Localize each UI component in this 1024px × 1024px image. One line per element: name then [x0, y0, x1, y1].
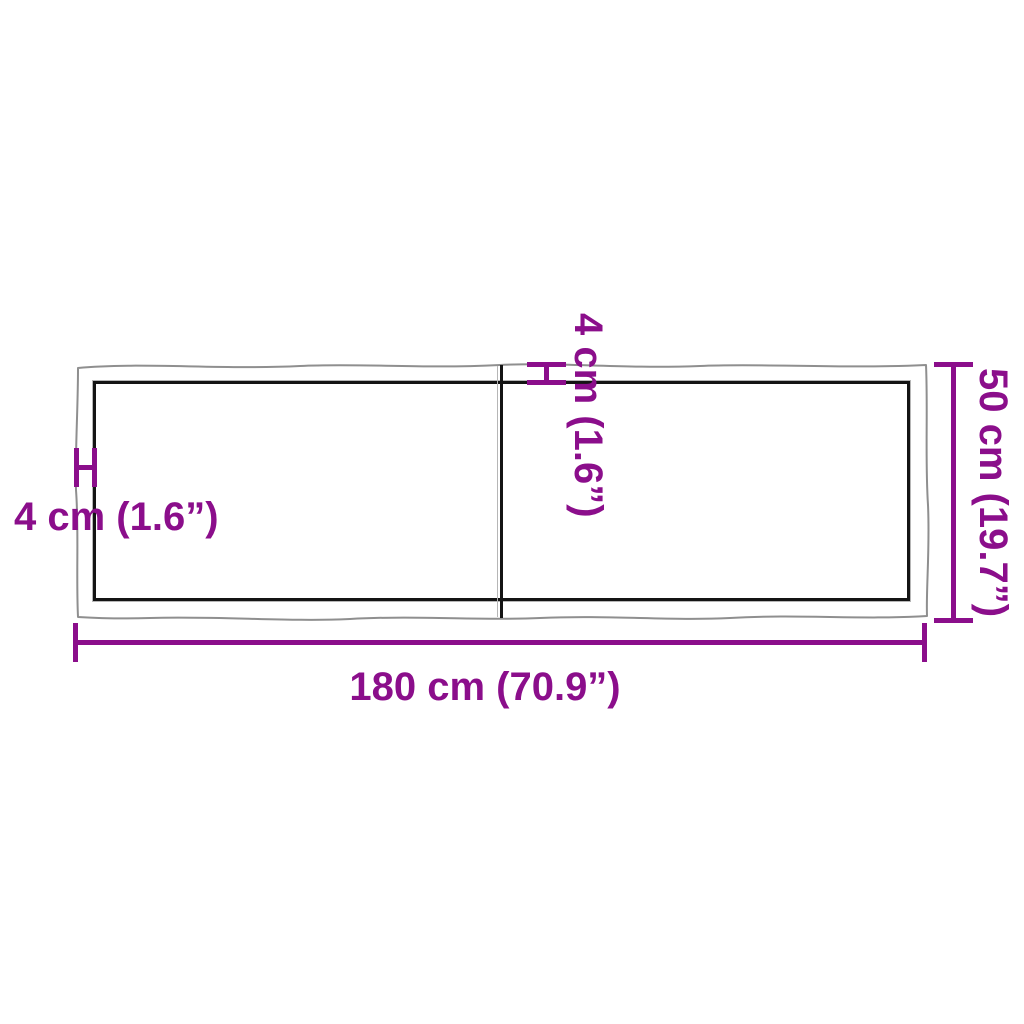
board-seam-line — [500, 365, 503, 618]
depth-dimension-cap-bottom — [934, 618, 973, 623]
width-dimension-label: 180 cm (70.9”) — [75, 667, 895, 707]
thickness-top-label: 4 cm (1.6”) — [568, 313, 608, 518]
width-dimension-line — [75, 640, 925, 645]
width-dimension-cap-right — [922, 623, 927, 662]
dimension-diagram: 180 cm (70.9”) 50 cm (19.7”) 4 cm (1.6”)… — [0, 0, 1024, 1024]
thickness-top-connector — [544, 362, 549, 385]
depth-dimension-line — [951, 364, 956, 621]
width-dimension-cap-left — [73, 623, 78, 662]
thickness-left-label: 4 cm (1.6”) — [14, 497, 219, 537]
board-seam-shadow — [497, 366, 498, 617]
depth-dimension-cap-top — [934, 362, 973, 367]
thickness-left-connector — [74, 465, 97, 470]
depth-dimension-label: 50 cm (19.7”) — [973, 364, 1013, 621]
